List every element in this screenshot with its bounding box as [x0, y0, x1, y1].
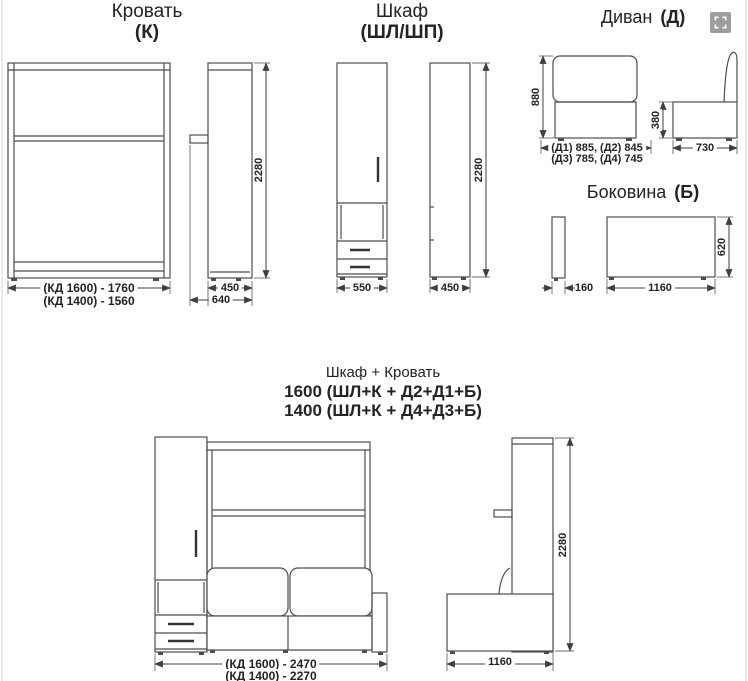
- sofa-title-text: Диван: [601, 7, 653, 28]
- bed-depth-inner-label: 450: [218, 282, 242, 294]
- combo-variant-1400: 1400 (ШЛ+К + Д4+Д3+Б): [284, 401, 482, 421]
- sofa-seat-height-label: 380: [650, 109, 662, 131]
- furniture-dimensions-diagram: Кровать (К) Шкаф (ШЛ/ШП) Диван(Д) Бокови…: [0, 0, 748, 681]
- wardrobe-width-label: 550: [350, 282, 374, 294]
- side-panel-height-label: 620: [716, 236, 728, 258]
- sofa-height-label: 880: [530, 86, 542, 108]
- side-panel-edge-view: [552, 217, 565, 281]
- sofa-code: (Д): [660, 7, 685, 28]
- bed-height-label: 2280: [253, 156, 265, 184]
- combo-variant-1600: 1600 (ШЛ+К + Д2+Д1+Б): [284, 382, 482, 402]
- wardrobe-code: (ШЛ/ШП): [360, 22, 443, 44]
- sofa-front-view: [553, 56, 637, 141]
- side-panel-thickness-label: 160: [572, 282, 596, 294]
- combo-title: Шкаф + Кровать: [326, 364, 440, 381]
- wardrobe-side-view: [430, 63, 470, 280]
- wardrobe-height-label: 2280: [473, 156, 485, 184]
- bed-title: Кровать: [112, 1, 183, 23]
- sofa-widths-d3-d4-label: (Д3) 785, (Д4) 745: [548, 153, 646, 165]
- combo-height-label: 2280: [557, 531, 569, 559]
- bed-width-1600-label: (КД 1600) - 1760: [40, 281, 137, 295]
- combo-width-1400-label: (КД 1400) - 2270: [222, 669, 319, 681]
- fullscreen-button[interactable]: [710, 12, 731, 33]
- side-panel-length-label: 1160: [645, 282, 675, 294]
- side-panel-face-view: [607, 217, 715, 280]
- combo-side-view: [447, 438, 553, 654]
- bed-side-view: [190, 63, 252, 281]
- wardrobe-title: Шкаф: [376, 1, 428, 23]
- wardrobe-depth-label: 450: [438, 282, 462, 294]
- sofa-title: Диван(Д): [601, 7, 685, 28]
- technical-drawing: [0, 0, 748, 681]
- sofa-depth-label: 730: [693, 142, 717, 154]
- sofa-side-view: [673, 52, 737, 141]
- side-panel-code: (Б): [674, 182, 699, 203]
- side-panel-dimensions: [542, 217, 733, 294]
- bed-width-1400-label: (КД 1400) - 1560: [40, 294, 137, 308]
- bed-code: (К): [135, 22, 159, 44]
- combo-front-view: [155, 437, 387, 655]
- bed-depth-outer-label: 640: [209, 294, 233, 306]
- side-panel-title: Боковина(Б): [587, 182, 699, 203]
- sofa-dimensions: [539, 56, 737, 154]
- bed-dimensions: [8, 63, 270, 306]
- bed-front-view: [8, 63, 170, 281]
- side-panel-title-text: Боковина: [587, 182, 666, 203]
- combo-depth-label: 1160: [485, 656, 515, 668]
- expand-icon: [714, 16, 727, 29]
- wardrobe-front-view: [337, 63, 387, 280]
